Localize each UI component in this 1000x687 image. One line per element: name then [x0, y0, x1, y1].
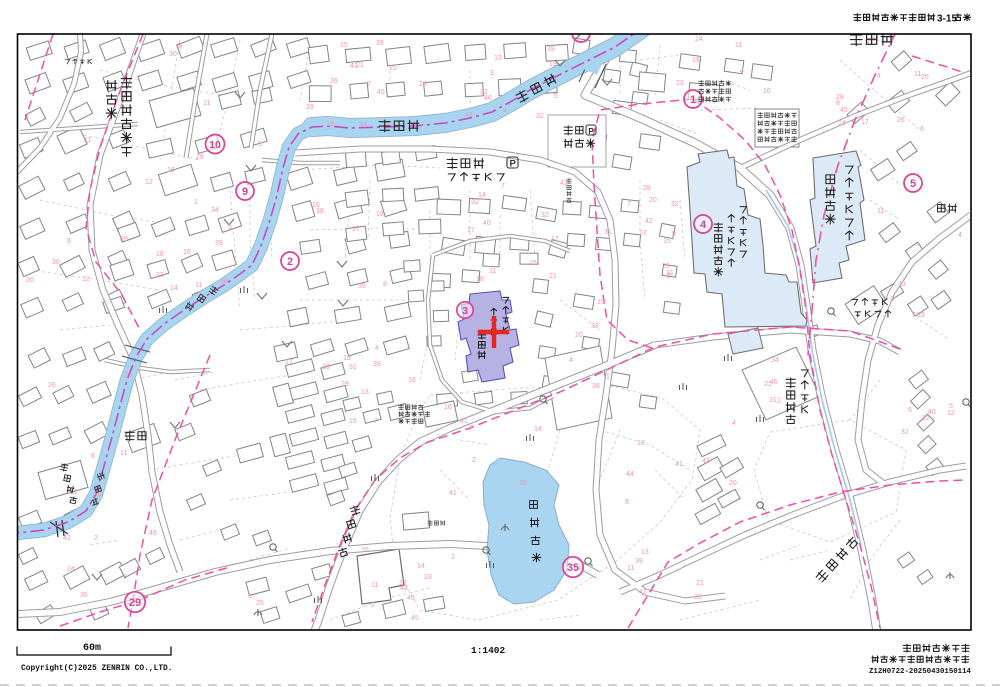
svg-text:7: 7 — [627, 201, 631, 208]
svg-text:12: 12 — [145, 179, 153, 186]
svg-text:39: 39 — [635, 558, 643, 565]
svg-text:23: 23 — [156, 272, 164, 279]
svg-text:14: 14 — [478, 192, 486, 199]
svg-text:45: 45 — [840, 107, 848, 114]
svg-text:2: 2 — [287, 256, 293, 268]
svg-text:35: 35 — [80, 592, 88, 599]
svg-text:26: 26 — [48, 382, 56, 389]
svg-text:15: 15 — [340, 42, 348, 49]
svg-text:39: 39 — [120, 236, 128, 243]
svg-text:15: 15 — [529, 260, 537, 267]
svg-text:19: 19 — [597, 299, 605, 306]
svg-text:35: 35 — [567, 562, 579, 574]
svg-text:1:1402: 1:1402 — [471, 645, 506, 656]
svg-text:13: 13 — [641, 549, 649, 556]
svg-text:14: 14 — [534, 426, 542, 433]
svg-text:16: 16 — [408, 377, 416, 384]
svg-text:20: 20 — [26, 277, 34, 284]
svg-text:17: 17 — [285, 359, 293, 366]
svg-text:42: 42 — [63, 535, 71, 542]
svg-text:17: 17 — [467, 227, 475, 234]
svg-text:2: 2 — [94, 535, 98, 542]
svg-text:3: 3 — [890, 296, 894, 303]
svg-text:40: 40 — [928, 409, 936, 416]
svg-text:39: 39 — [373, 361, 381, 368]
svg-text:12: 12 — [947, 410, 955, 417]
svg-text:21: 21 — [356, 62, 364, 69]
svg-text:41: 41 — [449, 490, 457, 497]
svg-text:35: 35 — [358, 283, 366, 290]
svg-text:17: 17 — [861, 119, 869, 126]
svg-text:12: 12 — [922, 415, 930, 422]
svg-text:29: 29 — [196, 154, 204, 161]
svg-text:7: 7 — [501, 183, 505, 190]
svg-text:34: 34 — [771, 357, 779, 364]
svg-text:10: 10 — [864, 40, 872, 47]
svg-text:32: 32 — [671, 201, 679, 208]
svg-text:60m: 60m — [83, 643, 101, 654]
svg-text:4: 4 — [958, 232, 962, 239]
svg-text:19: 19 — [549, 61, 557, 68]
svg-text:30: 30 — [322, 364, 330, 371]
svg-text:46: 46 — [770, 379, 778, 386]
svg-text:17: 17 — [551, 236, 559, 243]
svg-text:11: 11 — [371, 582, 378, 589]
svg-text:2: 2 — [472, 457, 476, 464]
svg-text:15: 15 — [361, 547, 369, 554]
svg-text:19: 19 — [519, 480, 527, 487]
svg-text:11: 11 — [735, 42, 742, 49]
svg-text:28: 28 — [836, 94, 844, 101]
svg-text:5: 5 — [258, 141, 262, 148]
svg-text:29: 29 — [306, 104, 314, 111]
svg-text:5: 5 — [949, 403, 953, 410]
svg-text:20: 20 — [575, 332, 583, 339]
svg-text:P: P — [588, 126, 594, 136]
svg-text:4: 4 — [503, 108, 507, 115]
svg-text:4: 4 — [700, 219, 707, 231]
svg-text:26: 26 — [330, 78, 338, 85]
svg-text:14: 14 — [417, 563, 425, 570]
svg-text:32: 32 — [536, 113, 544, 120]
svg-text:9: 9 — [672, 231, 676, 238]
svg-text:38: 38 — [592, 383, 600, 390]
svg-text:26: 26 — [897, 117, 905, 124]
svg-text:24: 24 — [67, 566, 75, 573]
svg-text:29: 29 — [341, 381, 349, 388]
svg-text:41: 41 — [460, 418, 468, 425]
svg-text:23: 23 — [676, 80, 684, 87]
svg-text:6: 6 — [920, 126, 924, 133]
svg-text:13: 13 — [637, 440, 645, 447]
svg-text:9: 9 — [242, 186, 248, 198]
svg-text:6: 6 — [91, 453, 95, 460]
svg-text:37: 37 — [399, 580, 407, 587]
svg-text:40: 40 — [483, 220, 491, 227]
svg-text:8: 8 — [836, 100, 840, 107]
svg-text:35: 35 — [694, 594, 702, 601]
svg-text:25: 25 — [389, 65, 397, 72]
svg-text:19: 19 — [343, 355, 351, 362]
svg-text:18: 18 — [220, 278, 228, 285]
svg-text:45: 45 — [411, 615, 419, 622]
svg-text:2: 2 — [777, 398, 781, 405]
svg-text:11: 11 — [489, 268, 496, 275]
svg-text:1: 1 — [606, 374, 610, 381]
svg-text:45: 45 — [377, 89, 385, 96]
svg-text:4: 4 — [877, 73, 881, 80]
svg-text:18: 18 — [376, 211, 384, 218]
svg-text:4: 4 — [740, 68, 744, 75]
svg-text:33: 33 — [359, 122, 367, 129]
svg-text:43: 43 — [702, 458, 710, 465]
svg-text:12: 12 — [82, 276, 90, 283]
svg-text:13: 13 — [898, 281, 906, 288]
svg-text:11: 11 — [914, 71, 921, 78]
svg-text:11: 11 — [120, 450, 127, 457]
svg-text:32: 32 — [541, 212, 549, 219]
svg-text:10: 10 — [209, 139, 221, 151]
svg-text:46: 46 — [149, 530, 157, 537]
svg-text:21: 21 — [549, 273, 557, 280]
svg-text:23: 23 — [124, 372, 132, 379]
svg-text:18: 18 — [476, 276, 484, 283]
svg-text:7: 7 — [469, 425, 473, 432]
svg-text:1: 1 — [690, 94, 696, 106]
svg-text:26: 26 — [921, 74, 929, 81]
svg-text:16: 16 — [183, 249, 191, 256]
svg-text:25: 25 — [256, 600, 264, 607]
svg-text:20: 20 — [662, 263, 670, 270]
svg-text:13: 13 — [361, 389, 369, 396]
svg-text:4: 4 — [375, 345, 379, 352]
svg-text:32: 32 — [480, 89, 488, 96]
svg-text:4: 4 — [732, 420, 736, 427]
svg-text:41: 41 — [639, 589, 647, 596]
svg-text:29: 29 — [129, 597, 141, 609]
svg-text:7: 7 — [374, 418, 378, 425]
svg-text:20: 20 — [649, 197, 657, 204]
svg-text:11: 11 — [627, 565, 634, 572]
svg-text:17: 17 — [352, 226, 360, 233]
svg-text:46: 46 — [484, 95, 492, 102]
svg-text:8: 8 — [383, 281, 387, 288]
svg-text:31: 31 — [349, 364, 357, 371]
svg-text:39: 39 — [376, 40, 384, 47]
svg-text:3: 3 — [490, 70, 494, 77]
svg-text:11: 11 — [84, 137, 91, 144]
svg-text:19: 19 — [326, 121, 334, 128]
svg-text:13: 13 — [494, 55, 502, 62]
svg-text:19: 19 — [692, 57, 700, 64]
svg-text:16: 16 — [167, 167, 175, 174]
svg-text:3: 3 — [462, 305, 468, 317]
svg-text:33: 33 — [917, 312, 925, 319]
svg-text:11: 11 — [877, 208, 884, 215]
svg-text:27: 27 — [639, 230, 647, 237]
svg-text:P: P — [510, 159, 517, 170]
svg-text:1: 1 — [194, 199, 198, 206]
svg-text:5: 5 — [554, 93, 558, 100]
svg-text:44: 44 — [626, 471, 634, 478]
svg-text:43: 43 — [465, 112, 473, 119]
svg-text:10: 10 — [763, 88, 771, 95]
svg-text:33: 33 — [591, 323, 599, 330]
svg-text:24: 24 — [695, 36, 703, 43]
svg-text:14: 14 — [170, 285, 178, 292]
svg-text:28: 28 — [643, 185, 651, 192]
svg-text:2: 2 — [451, 554, 455, 561]
svg-text:32: 32 — [471, 199, 479, 206]
svg-text:4: 4 — [569, 357, 573, 364]
svg-text:2: 2 — [371, 602, 375, 609]
svg-text:8: 8 — [625, 499, 629, 506]
svg-text:30: 30 — [169, 51, 177, 58]
svg-text:7: 7 — [912, 312, 916, 319]
svg-text:5: 5 — [228, 224, 232, 231]
svg-text:21: 21 — [696, 580, 704, 587]
svg-text:7: 7 — [367, 81, 371, 88]
svg-text:31: 31 — [604, 229, 612, 236]
svg-text:7: 7 — [179, 45, 183, 52]
svg-text:3: 3 — [123, 574, 127, 581]
svg-text:6: 6 — [248, 593, 252, 600]
svg-text:31: 31 — [666, 270, 674, 277]
svg-text:15: 15 — [349, 418, 357, 425]
svg-text:14: 14 — [838, 120, 846, 127]
svg-text:39: 39 — [215, 240, 223, 247]
svg-text:31: 31 — [70, 489, 78, 496]
svg-text:Z12H0722-20250430150114: Z12H0722-20250430150114 — [869, 668, 972, 676]
svg-text:6: 6 — [67, 238, 71, 245]
svg-text:39: 39 — [547, 46, 555, 53]
svg-text:30: 30 — [52, 259, 60, 266]
svg-text:45: 45 — [407, 595, 415, 602]
svg-text:42: 42 — [645, 218, 653, 225]
svg-text:11: 11 — [195, 282, 202, 289]
svg-text:5: 5 — [910, 178, 916, 190]
svg-text:31: 31 — [769, 397, 777, 404]
svg-text:Copyright(C)2025 ZENRIN CO.,LT: Copyright(C)2025 ZENRIN CO.,LTD. — [21, 664, 173, 673]
svg-text:15: 15 — [663, 238, 671, 245]
svg-text:34: 34 — [211, 207, 219, 214]
svg-text:38: 38 — [316, 208, 324, 215]
svg-text:41: 41 — [675, 461, 683, 468]
svg-text:18: 18 — [156, 251, 164, 258]
svg-text:16: 16 — [444, 404, 452, 411]
svg-text:11: 11 — [203, 100, 210, 107]
svg-text:32: 32 — [901, 429, 909, 436]
svg-text:33: 33 — [424, 574, 432, 581]
svg-text:24: 24 — [419, 81, 427, 88]
svg-text:6: 6 — [908, 407, 912, 414]
svg-text:20: 20 — [729, 480, 737, 487]
